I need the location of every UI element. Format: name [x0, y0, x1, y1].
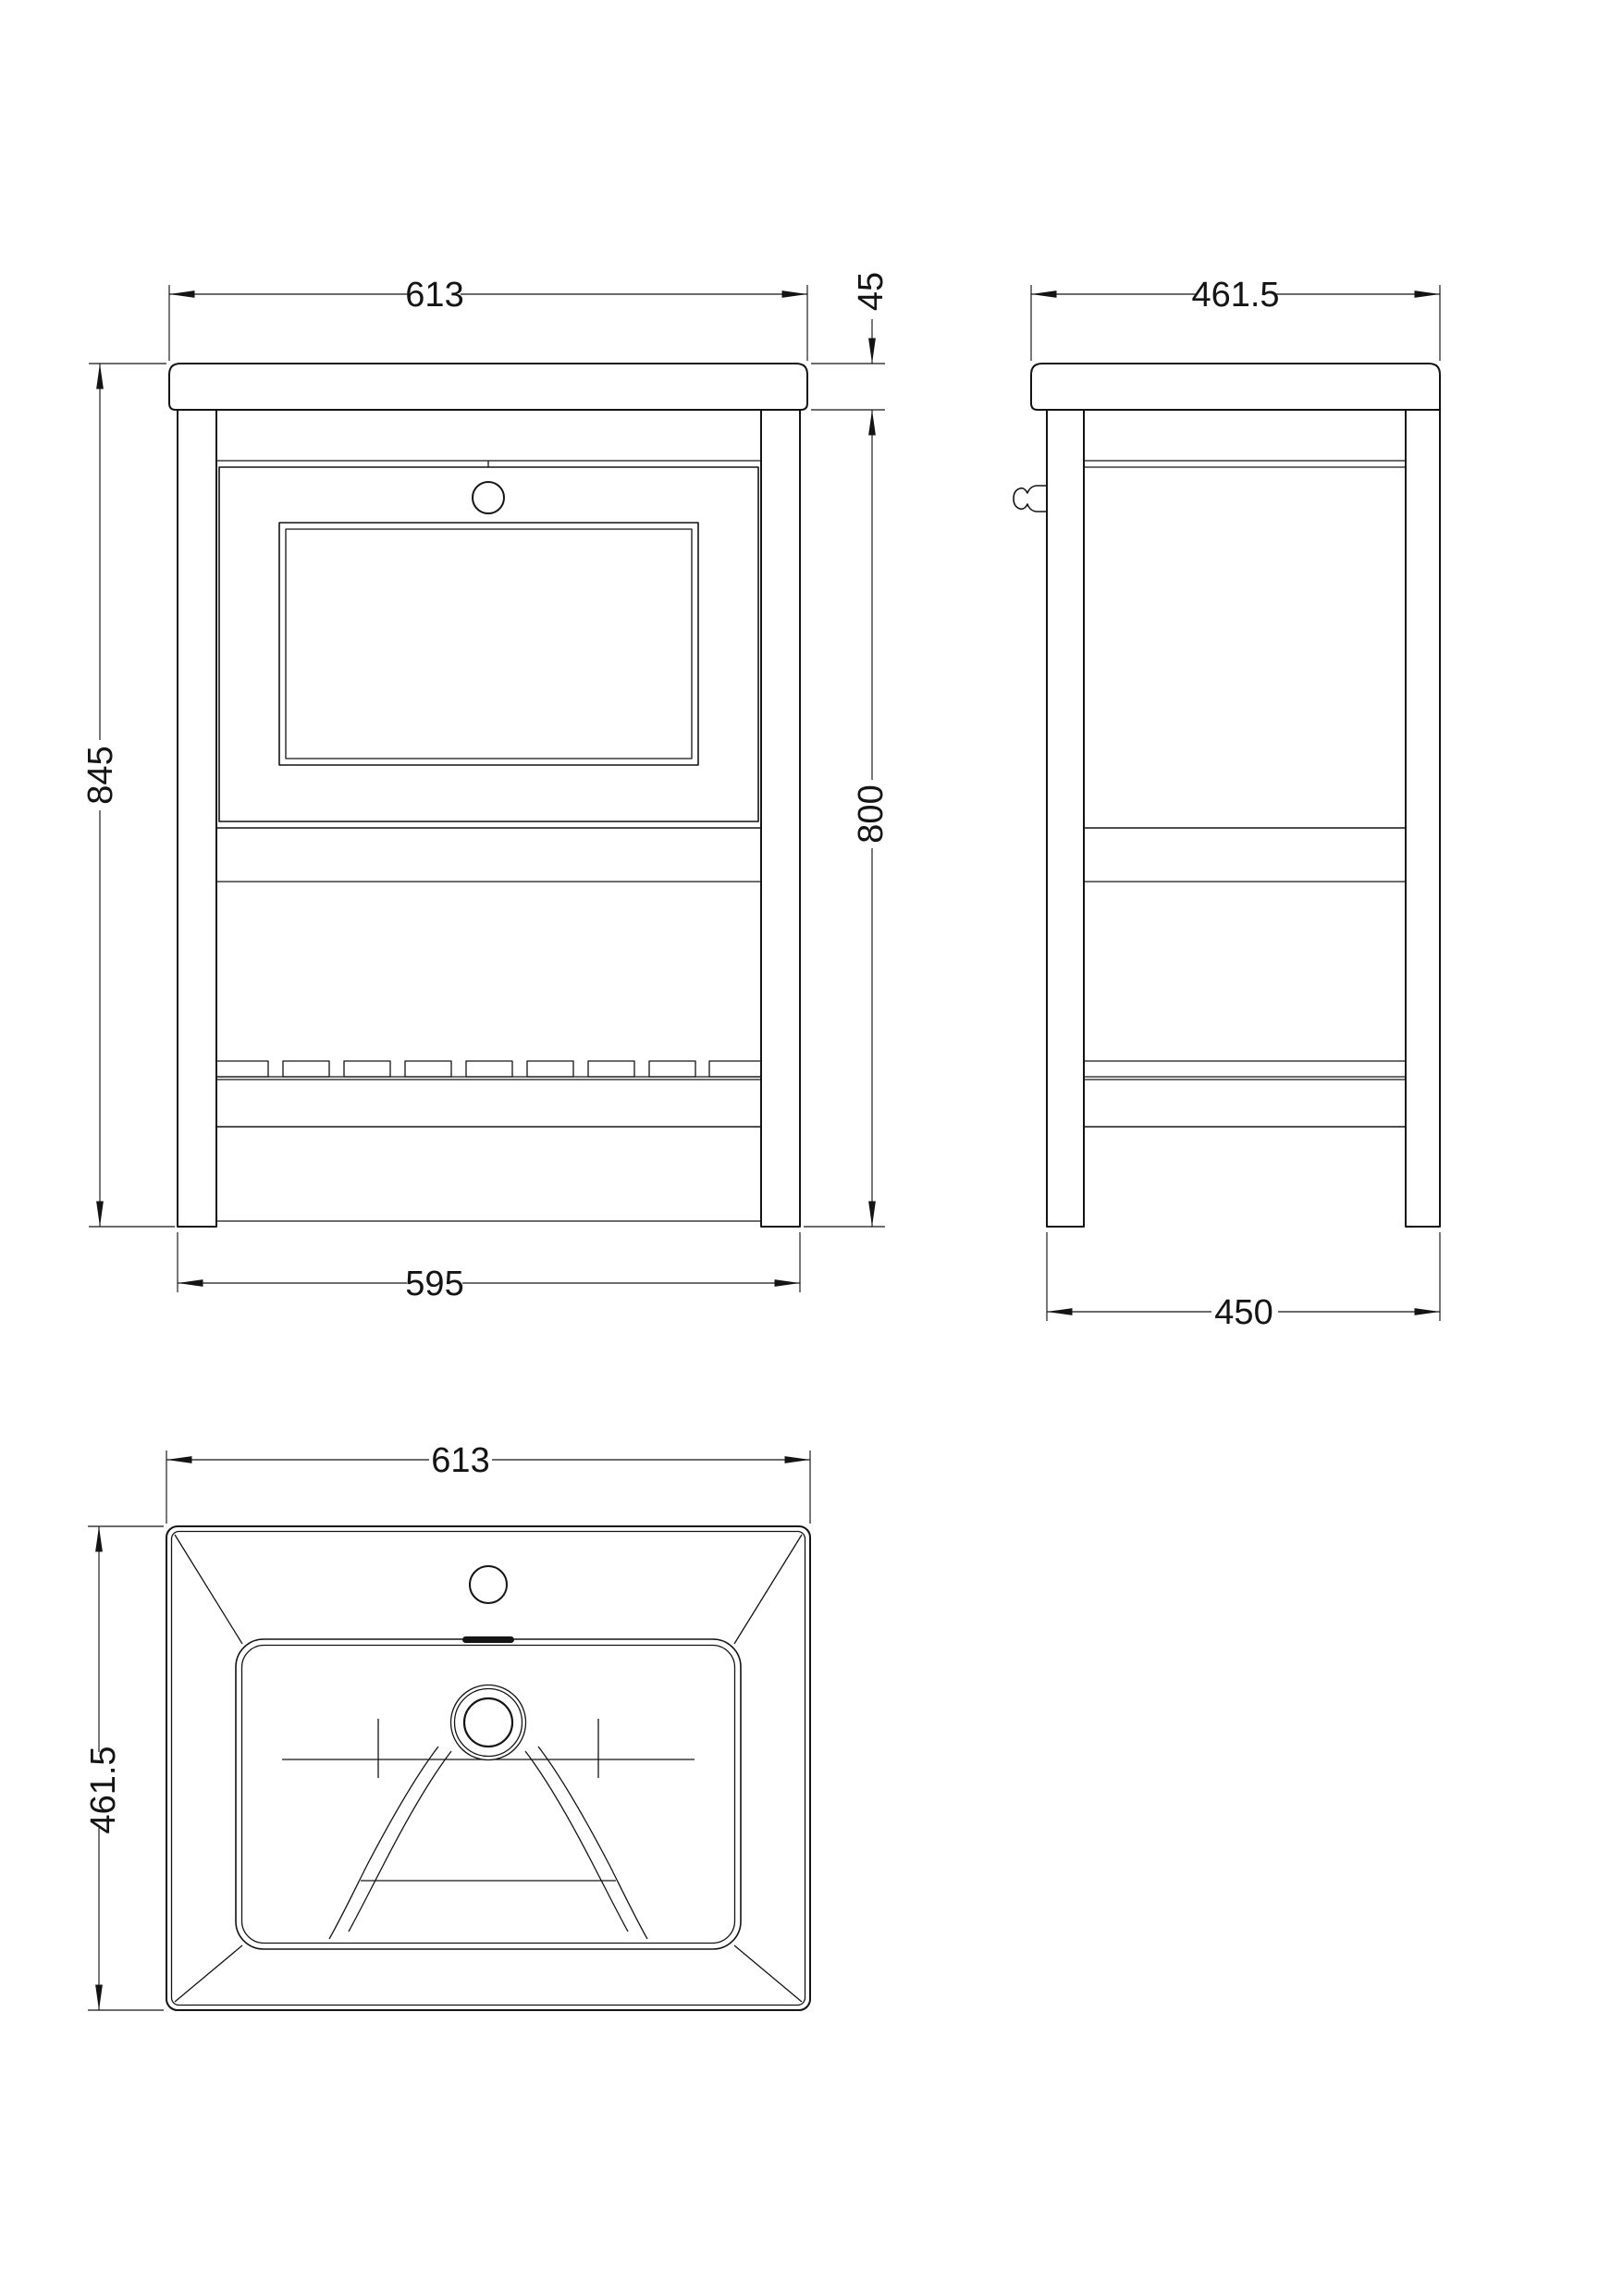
top-view: 613 461.5 [84, 1441, 810, 2010]
dim-label-side-base-depth: 450 [1214, 1293, 1273, 1332]
tap-hole [470, 1566, 507, 1603]
dim-front-cabinet-height: 800 [804, 410, 891, 1227]
side-legs [1047, 410, 1440, 1227]
dim-top-width: 613 [166, 1441, 810, 1524]
dim-front-top-thickness: 45 [811, 272, 891, 410]
dim-side-top-depth: 461.5 [1031, 276, 1440, 361]
dim-label-top-depth: 461.5 [84, 1746, 123, 1833]
dim-label-front-top-width: 613 [405, 276, 463, 315]
front-view: 613 845 45 800 595 [81, 272, 891, 1303]
dim-top-depth: 461.5 [84, 1526, 164, 2010]
dim-front-top-width: 613 [169, 276, 807, 361]
front-knob [473, 482, 504, 513]
front-countertop [169, 364, 807, 410]
front-mid-rail [216, 828, 761, 882]
overflow-slot [462, 1636, 514, 1643]
technical-drawing-canvas: 613 845 45 800 595 [0, 0, 1623, 2296]
dim-label-top-width: 613 [431, 1441, 489, 1480]
front-shelf-slats [216, 1061, 761, 1221]
front-top-rail [216, 461, 761, 467]
drain-hole [451, 1685, 526, 1760]
dim-label-front-total-height: 845 [81, 746, 120, 804]
dim-label-front-top-thickness: 45 [852, 272, 891, 311]
front-drawer-face [219, 467, 758, 821]
front-legs [178, 410, 800, 1227]
dim-front-base-width: 595 [178, 1232, 800, 1303]
basin-outline [166, 1526, 810, 2010]
dim-label-front-base-width: 595 [405, 1265, 463, 1303]
dim-label-side-top-depth: 461.5 [1191, 276, 1279, 315]
side-view: 461.5 450 [1014, 276, 1440, 1332]
dim-label-front-cabinet-height: 800 [852, 784, 891, 843]
dim-front-total-height: 845 [81, 364, 175, 1227]
dim-side-base-depth: 450 [1047, 1232, 1440, 1332]
side-knob [1014, 486, 1047, 512]
side-countertop [1031, 364, 1440, 410]
side-rails [1084, 461, 1406, 1127]
front-drawer-panel [279, 523, 698, 765]
